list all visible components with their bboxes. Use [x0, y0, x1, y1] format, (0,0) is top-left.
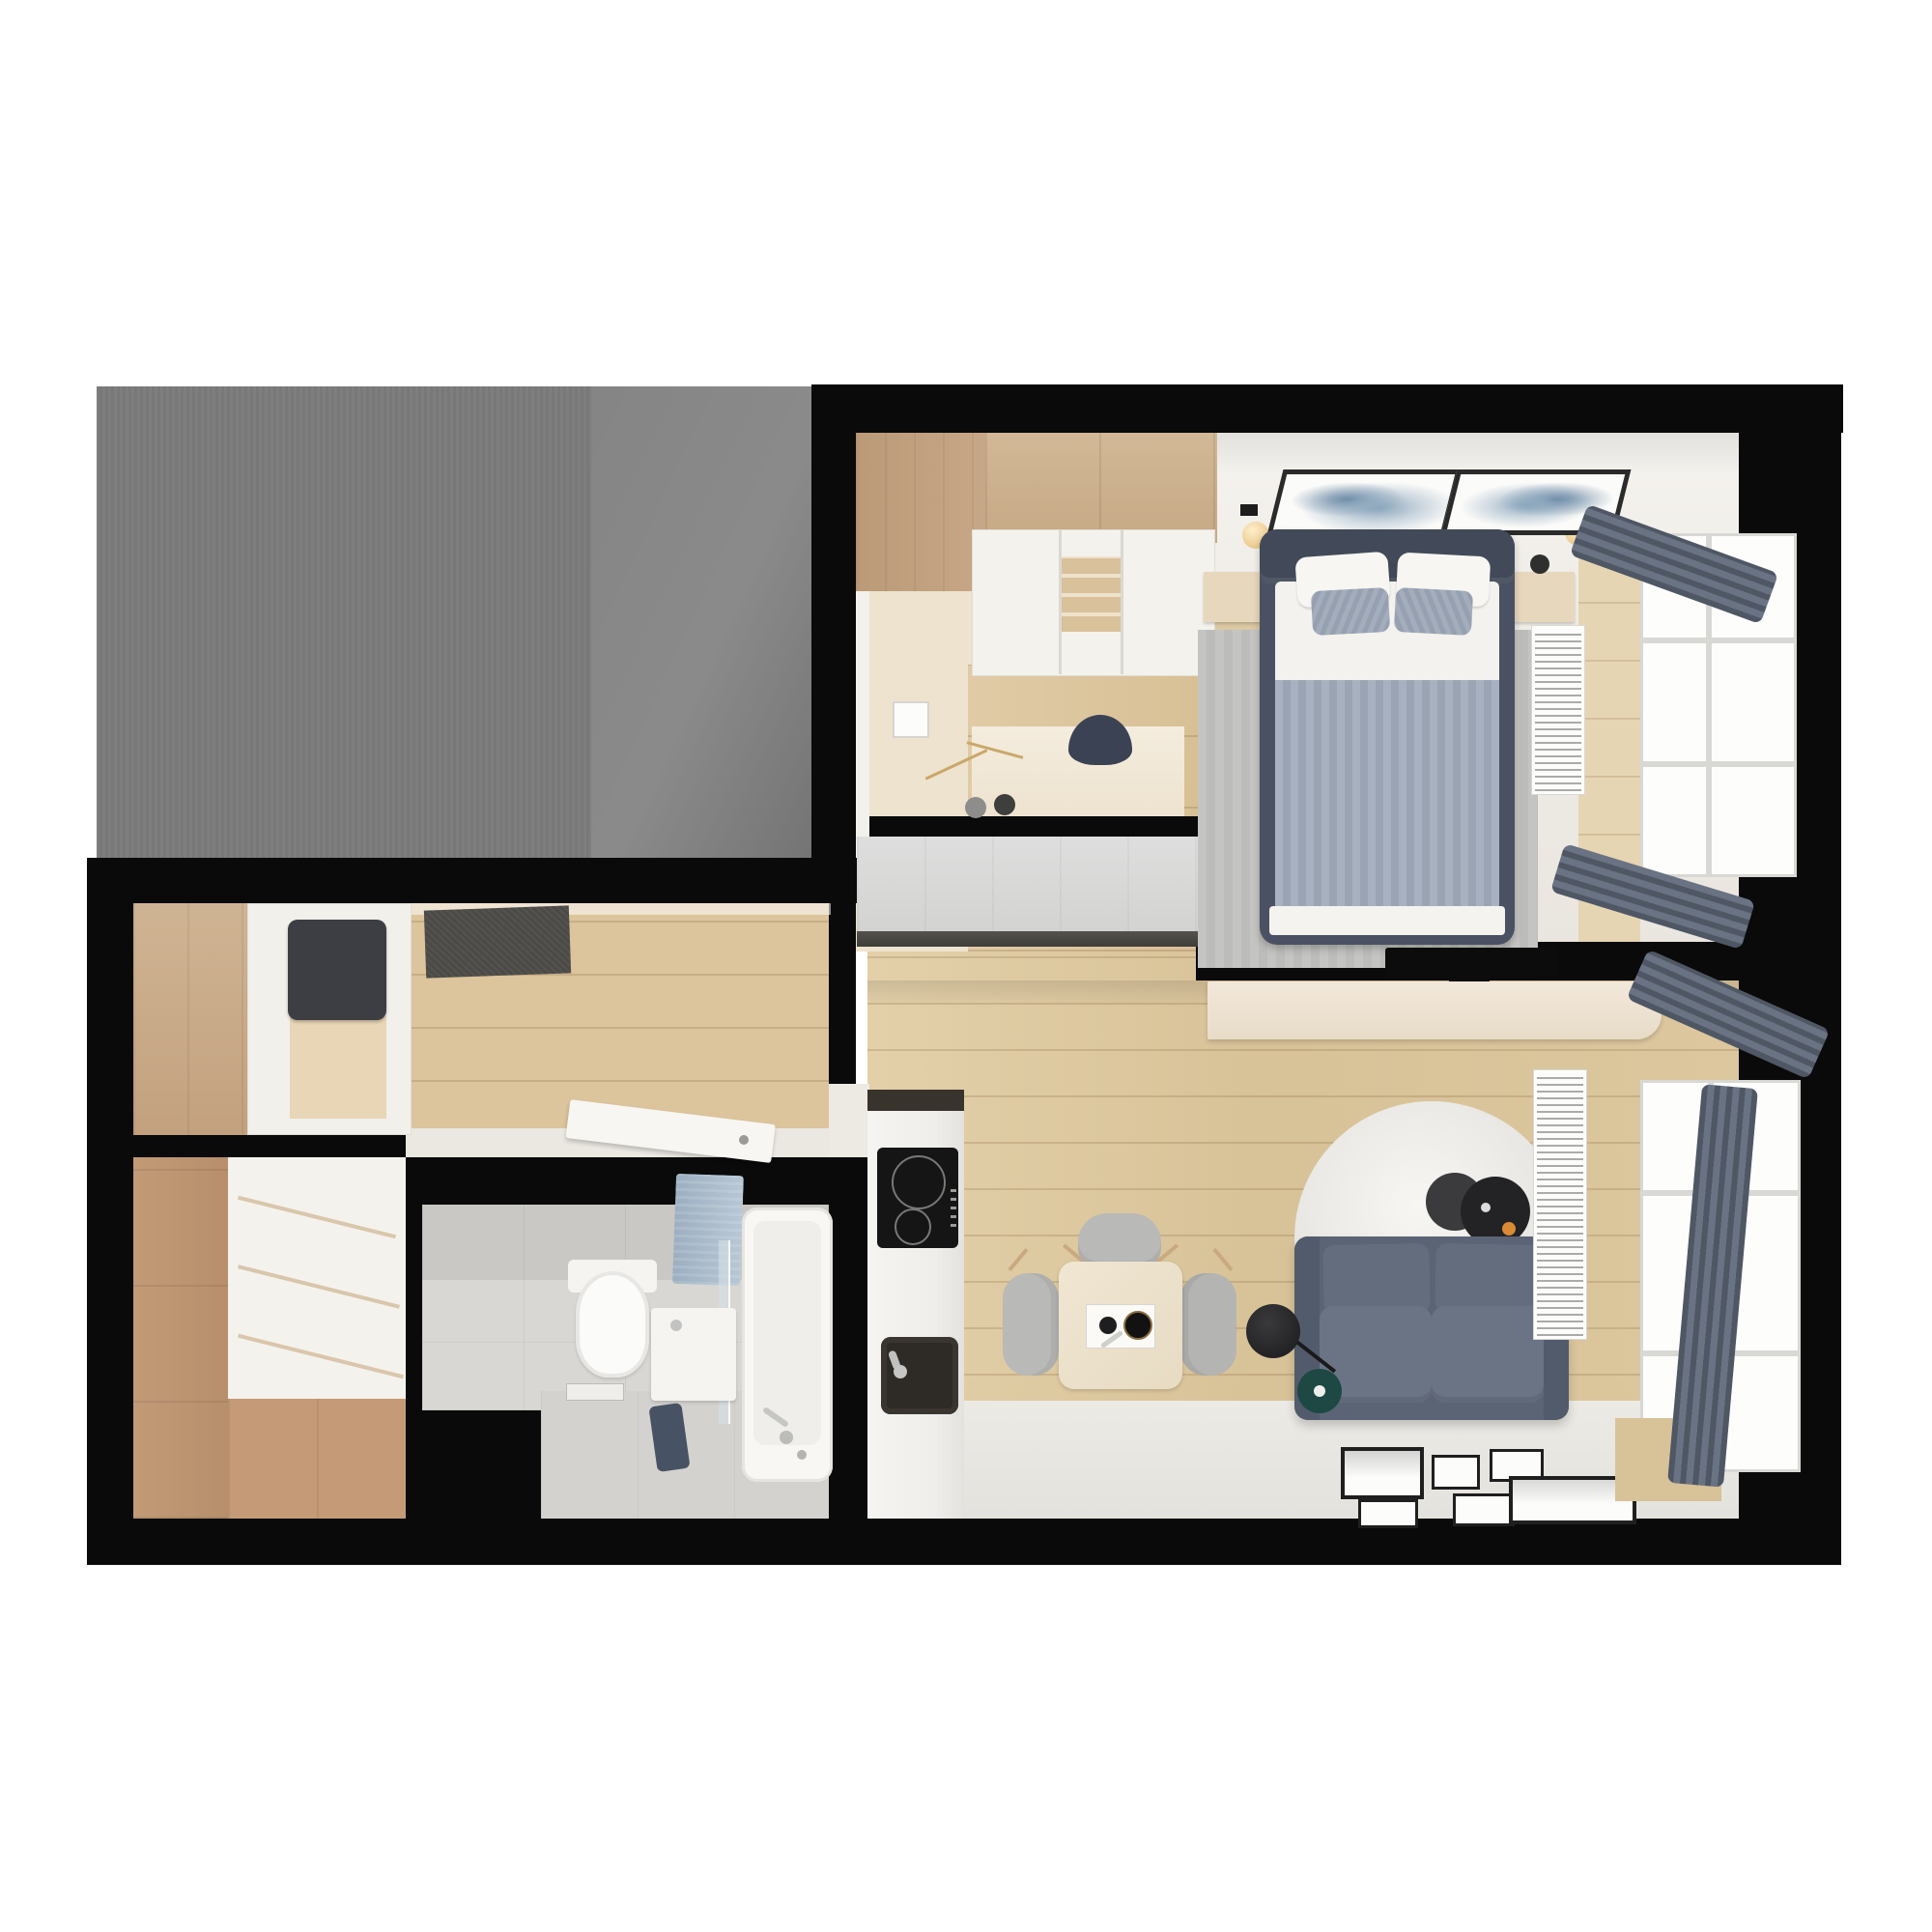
kitchen-counter-dark-top	[867, 1090, 964, 1111]
wall-bedroom-entry-divider	[854, 816, 1217, 837]
adjacent-unit-slab-light-band	[591, 386, 811, 858]
living-radiator	[1534, 1070, 1586, 1339]
sink-faucet	[894, 1365, 907, 1378]
bench-cushion	[288, 920, 386, 1020]
dining-chair-right	[1180, 1273, 1236, 1376]
pillow-gray-2	[1394, 587, 1473, 636]
wall-hall-right-lower	[829, 1157, 869, 1519]
storage-left-cabinet	[133, 1157, 228, 1519]
door-opening-floor	[829, 1084, 869, 1157]
entry-cabinet	[857, 837, 1198, 939]
wall-top	[811, 384, 1843, 433]
tub-faucet-head	[780, 1431, 793, 1444]
cooktop-burner-large	[892, 1155, 946, 1209]
nightstand-decor	[1530, 554, 1549, 574]
cooktop-controls	[951, 1188, 956, 1227]
bedroom-window-mullion-h2	[1640, 761, 1797, 767]
sofa-seat-cushion-2	[1432, 1306, 1544, 1403]
pillow-gray-1	[1311, 587, 1390, 636]
wall-lamp-left-mount	[1240, 504, 1258, 516]
tray-bowl-small	[1099, 1317, 1117, 1334]
picture-frame-1	[1267, 469, 1462, 535]
hall-wardrobe	[133, 903, 247, 1135]
closet-step-shelves	[1061, 556, 1122, 632]
bathroom-towel-blue	[672, 1174, 744, 1286]
closet-door-seam-2	[1121, 529, 1123, 674]
floor-frame-5	[1453, 1493, 1515, 1526]
sofa-back-cushion-2	[1435, 1243, 1542, 1315]
door-handle	[739, 1135, 749, 1145]
vanity-unit	[651, 1308, 736, 1401]
wall-hallway-top	[87, 858, 860, 903]
wall-bottom	[87, 1519, 1841, 1565]
bench-niche-wood	[290, 1016, 386, 1119]
floor-lamp-base-dot	[1314, 1385, 1325, 1397]
bed-blanket	[1275, 680, 1499, 912]
wall-mid-vertical	[811, 433, 856, 858]
desk-cup-dark	[994, 794, 1015, 815]
tv-panel	[1385, 948, 1559, 979]
sofa-back-cushion-1	[1322, 1243, 1430, 1315]
floor-lamp-shade	[1246, 1304, 1300, 1358]
tray-bowl-large	[1123, 1311, 1152, 1340]
kitchen-sink	[881, 1337, 958, 1414]
sideboard	[1207, 981, 1662, 1039]
decor-disc-dot-orange	[1502, 1222, 1516, 1236]
floor-plan-stage	[0, 0, 1932, 1932]
light-switch	[893, 701, 929, 738]
floor-frame-2	[1432, 1455, 1480, 1490]
closet-door-seam-1	[1059, 529, 1062, 674]
cooktop-burner-small	[895, 1208, 931, 1245]
bedroom-radiator	[1532, 626, 1584, 794]
wall-bathroom-notch	[422, 1410, 541, 1519]
vanity-faucet	[670, 1320, 682, 1331]
nightstand-left	[1204, 572, 1264, 622]
entry-cabinet-edge	[857, 931, 1198, 947]
wall-bathroom-top	[406, 1157, 833, 1205]
floor-frame-1	[1341, 1447, 1424, 1499]
doormat	[424, 905, 571, 978]
storage-bottom-cabinet	[228, 1399, 406, 1519]
toilet-bowl	[576, 1271, 649, 1378]
desk-cup-gray	[965, 797, 986, 818]
bedroom-wardrobe-left	[856, 433, 985, 591]
bedroom-window-mullion-h1	[1640, 638, 1797, 643]
bed-foot-fold	[1269, 906, 1505, 935]
floor-frame-4	[1358, 1499, 1418, 1528]
floor-plan-render	[0, 0, 1932, 1932]
nightstand-right	[1507, 572, 1575, 622]
wall-hall-right-upper	[829, 903, 856, 1084]
decor-disc-dot-white	[1481, 1203, 1491, 1212]
storage-shelf-unit	[228, 1157, 406, 1399]
bedroom-wardrobe-top	[985, 433, 1217, 543]
floor-drain	[566, 1383, 624, 1401]
wall-storage-bathroom-divider	[406, 1157, 422, 1519]
wall-left	[87, 858, 133, 1565]
dining-chair-left	[1003, 1273, 1059, 1376]
tub-handle	[797, 1450, 807, 1460]
